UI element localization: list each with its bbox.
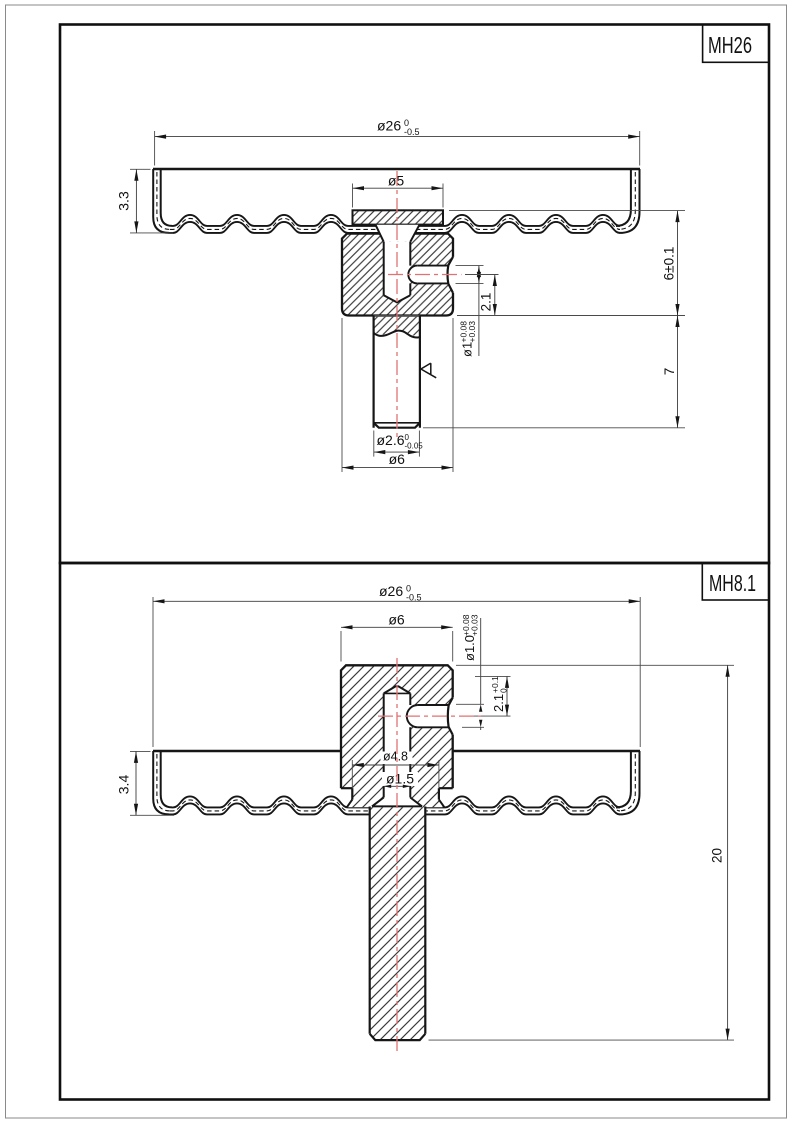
svg-text:20: 20 (710, 848, 725, 863)
svg-text:ø5: ø5 (388, 173, 405, 189)
svg-text:ø4.8: ø4.8 (383, 750, 408, 764)
svg-text:ø1: ø1 (460, 342, 475, 357)
svg-text:+0.03: +0.03 (470, 614, 480, 636)
svg-text:3.4: 3.4 (116, 775, 132, 795)
svg-text:7: 7 (662, 368, 677, 376)
svg-text:ø26: ø26 (377, 118, 401, 134)
svg-text:ø1.0: ø1.0 (462, 635, 477, 661)
svg-text:6±0.1: 6±0.1 (662, 247, 677, 281)
svg-text:ø1.5: ø1.5 (386, 771, 414, 787)
svg-text:ø6: ø6 (389, 451, 406, 467)
svg-text:+0.03: +0.03 (467, 321, 477, 343)
svg-text:ø2.6: ø2.6 (377, 432, 405, 448)
svg-text:3.3: 3.3 (116, 191, 132, 211)
svg-text:MH8.1: MH8.1 (709, 570, 756, 596)
svg-text:ø26: ø26 (379, 583, 403, 599)
svg-text:2.1: 2.1 (479, 293, 494, 312)
svg-text:ø6: ø6 (388, 612, 405, 628)
svg-text:0: 0 (499, 688, 509, 693)
svg-text:2.1: 2.1 (491, 694, 506, 712)
svg-text:MH26: MH26 (708, 32, 752, 58)
svg-text:-0.5: -0.5 (404, 127, 420, 137)
svg-text:-0.05: -0.05 (405, 442, 424, 451)
svg-text:-0.5: -0.5 (406, 593, 422, 603)
